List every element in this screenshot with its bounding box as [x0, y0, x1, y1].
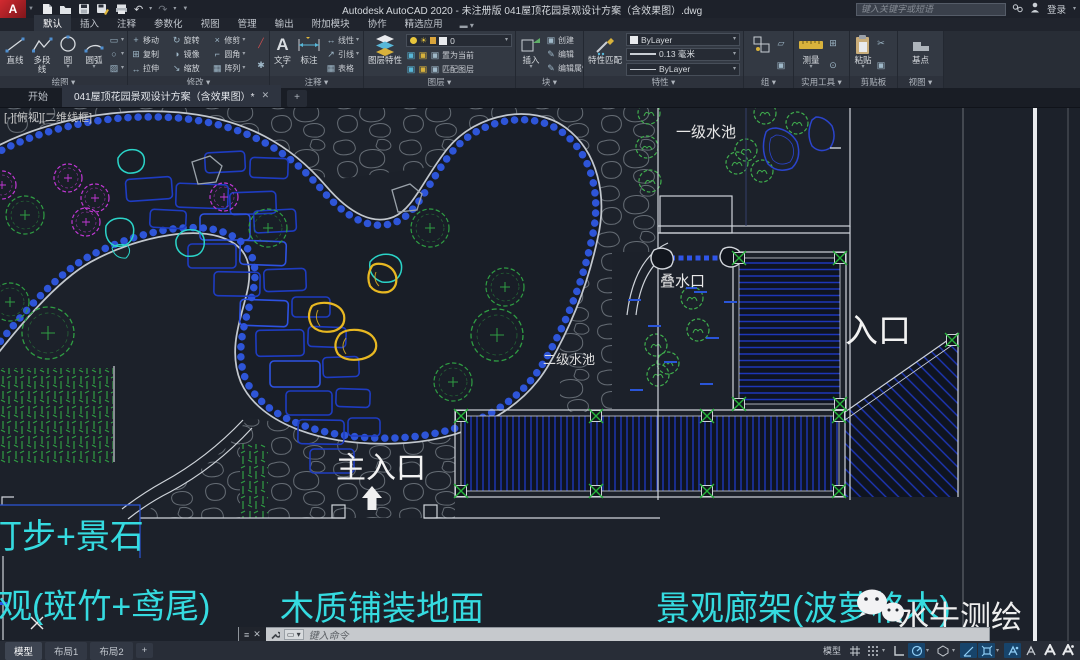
ortho-icon[interactable] — [890, 643, 907, 658]
ribbon-tab-insert[interactable]: 插入 — [71, 15, 108, 31]
ellipse-tool-icon[interactable]: ○▾ — [109, 49, 124, 59]
line-icon — [4, 34, 26, 56]
panel-label-view[interactable]: 视图 ▾ — [898, 76, 943, 88]
cut-icon[interactable]: ✂ — [876, 38, 886, 49]
copy-clip-icon[interactable]: ▣ — [876, 60, 886, 71]
titlebar-more-icon[interactable]: ▾ — [1073, 7, 1076, 12]
entrance-label: 入口 — [845, 312, 911, 349]
ribbon-tab-row: 默认 插入 注释 参数化 视图 管理 输出 附加模块 协作 精选应用 ▬ ▾ — [0, 18, 1080, 31]
linetype-preview — [630, 69, 656, 70]
group-tool[interactable] — [751, 33, 773, 76]
layout1-tab[interactable]: 布局1 — [45, 642, 87, 660]
ribbon-tab-featured[interactable]: 精选应用 — [396, 15, 452, 31]
fillet-icon: ⌐ — [212, 49, 222, 59]
arc-tool[interactable]: 圆弧 ▾ — [82, 33, 106, 76]
copy-tool[interactable]: ⊞复制 — [131, 49, 167, 60]
undo-icon[interactable]: ↶ — [134, 3, 143, 16]
status-toggles: 模型 ▾ ▾ ▾ ▾ — [823, 643, 1075, 658]
plot-icon[interactable] — [115, 4, 128, 15]
linetype-value: ByLayer — [659, 64, 730, 74]
erase-icon[interactable]: ╱ — [256, 38, 266, 49]
polar-tracking-icon[interactable] — [908, 643, 925, 658]
command-grip[interactable]: ≡ ✕ — [239, 627, 266, 641]
id-point-icon[interactable]: ⊙ — [828, 60, 838, 71]
viewport-controls-label[interactable]: [-][俯视][二维线框] — [4, 110, 92, 124]
group-extra-tools: ▱ ▣ — [776, 33, 786, 76]
redo-icon[interactable]: ↷ — [158, 3, 167, 16]
signin-button[interactable]: 登录 — [1047, 2, 1066, 16]
add-layout-tab[interactable]: + — [136, 643, 154, 658]
trim-tool[interactable]: ×修剪 ▾ — [212, 35, 253, 46]
open-file-icon[interactable] — [59, 4, 72, 15]
panel-label-annotate[interactable]: 注释 ▾ — [270, 76, 363, 88]
block-extra-tools: ▣创建 ✎编辑 ✎编辑属性 ▾ — [546, 33, 583, 76]
save-as-icon[interactable] — [96, 3, 109, 15]
status-bar: 模型 布局1 布局2 + 模型 ▾ ▾ ▾ ▾ — [0, 641, 1080, 660]
command-input[interactable]: 键入命令 — [309, 627, 349, 641]
lineweight-preview — [630, 53, 656, 55]
mirror-icon: ◑ — [172, 49, 182, 59]
edit-block-tool[interactable]: ✎编辑 — [546, 49, 583, 60]
array-icon: ▦ — [212, 63, 222, 74]
ungroup-icon[interactable]: ▱ — [776, 38, 786, 49]
customize-wrench-icon[interactable] — [270, 630, 280, 640]
mirror-tool[interactable]: ◑镜像 — [172, 49, 208, 60]
layer-color-swatch — [439, 37, 447, 45]
base-point-icon — [910, 34, 932, 56]
osnap-icon[interactable] — [978, 643, 995, 658]
ribbon-display-toggle-icon[interactable]: ▬ ▾ — [460, 21, 474, 31]
panel-label-block[interactable]: 块 ▾ — [516, 76, 583, 88]
layer-dropdown[interactable]: ☀ 0 ▾ — [406, 34, 512, 47]
create-block-tool[interactable]: ▣创建 — [546, 35, 583, 46]
clipboard-extra-tools: ✂ ▣ — [876, 33, 886, 76]
ribbon-tab-parametric[interactable]: 参数化 — [145, 15, 192, 31]
panel-utilities: 测量 ▾ ⊞ ⊙ 实用工具 ▾ — [794, 31, 850, 88]
panel-view: 基点 视图 ▾ — [898, 31, 944, 88]
arc-icon — [83, 34, 105, 56]
annotation-icon[interactable] — [1004, 643, 1021, 658]
annotate-extra-tools: ↔线性 ▾ ↗引线 ▾ ▦表格 — [326, 33, 359, 76]
layer-lock-icon — [430, 37, 436, 44]
main-entrance-label: 主入口 — [336, 452, 426, 485]
drawing-canvas[interactable]: [-][俯视][二维线框] 一级水池 叠水口 二级水池 主入口 入口 汀步+景石… — [0, 108, 1080, 641]
match-properties-tool[interactable]: 特性匹配 — [587, 33, 623, 76]
grip-icon[interactable]: ≡ — [244, 630, 249, 640]
rectangle-tool-icon[interactable]: ▭▾ — [109, 35, 124, 46]
ribbon-tab-manage[interactable]: 管理 — [229, 15, 266, 31]
cascade-label: 叠水口 — [660, 273, 705, 290]
titlebar-right-icons: 登录 ▾ — [1012, 2, 1076, 16]
array-tool[interactable]: ▦阵列 ▾ — [212, 63, 253, 74]
command-line[interactable]: ≡ ✕ ▭ ▾ 键入命令 — [238, 627, 990, 641]
ribbon-tab-addins[interactable]: 附加模块 — [303, 15, 359, 31]
model-space-label[interactable]: 模型 — [823, 644, 841, 657]
rotate-tool[interactable]: ↻旋转 — [172, 35, 208, 46]
match-properties-icon — [593, 34, 617, 56]
account-icon[interactable] — [1030, 2, 1040, 16]
properties-controls: ByLayer ▾ 0.13 毫米 ▾ ByLayer ▾ — [626, 33, 740, 76]
scale-tool[interactable]: ↘缩放 — [172, 63, 208, 74]
panel-draw: 直线 多段线 圆 ▾ 圆弧 ▾ ▭▾ ○▾ — [0, 31, 128, 88]
ribbon-tab-view[interactable]: 视图 — [192, 15, 229, 31]
paste-tool[interactable]: 粘贴 ▾ — [853, 33, 873, 76]
group-icon — [752, 34, 772, 56]
dimension-tool[interactable]: 标注 — [295, 33, 323, 76]
isodraft-caret-icon[interactable]: ▾ — [952, 647, 959, 654]
panel-properties: 特性匹配 ByLayer ▾ 0.13 毫米 ▾ ByL — [584, 31, 744, 88]
quick-access-toolbar: ↶▾ ↷▾ ▼ — [42, 3, 188, 16]
panel-modify: +移动 ↻旋转 ×修剪 ▾ ⊞复制 ◑镜像 ⌐圆角 ▾ ↔拉伸 ↘缩放 ▦阵列 … — [128, 31, 270, 88]
paste-icon — [854, 34, 872, 56]
fillet-tool[interactable]: ⌐圆角 ▾ — [212, 49, 253, 60]
bamboo-iris-label: 景观(斑竹+鸢尾) — [0, 588, 211, 626]
draw-extra-tools: ▭▾ ○▾ ▨▾ — [109, 33, 124, 76]
isodraft-icon[interactable] — [934, 643, 951, 658]
group-edit-icon[interactable]: ▣ — [776, 60, 786, 71]
text-icon: A — [276, 34, 288, 56]
layers-controls: ☀ 0 ▾ ▣▣▣置为当前 ▣▣▣匹配图层 — [406, 33, 512, 76]
ribbon-tab-annotate[interactable]: 注释 — [108, 15, 145, 31]
pool2-label: 二级水池 — [543, 352, 595, 367]
panel-clipboard: 粘贴 ▾ ✂ ▣ 剪贴板 — [850, 31, 898, 88]
match-layer-tool[interactable]: ▣▣▣匹配图层 — [406, 64, 512, 75]
panel-label-properties[interactable]: 特性 ▾ — [584, 76, 743, 88]
pool1-label: 一级水池 — [676, 124, 736, 141]
logo-caret-icon[interactable]: ▼ — [28, 6, 34, 12]
exchange-icon[interactable] — [1012, 3, 1023, 16]
move-icon: + — [131, 35, 141, 45]
panel-group: ▱ ▣ 组 ▾ — [744, 31, 794, 88]
table-tool[interactable]: ▦表格 — [326, 63, 359, 74]
dimension-icon — [296, 34, 322, 56]
grid-icon[interactable] — [846, 643, 863, 658]
annotation-scale-icon[interactable] — [1022, 643, 1039, 658]
layer-on-icon — [410, 37, 417, 44]
help-search-box[interactable] — [856, 3, 1006, 16]
ribbon: 直线 多段线 圆 ▾ 圆弧 ▾ ▭▾ ○▾ — [0, 31, 1080, 88]
layout2-tab[interactable]: 布局2 — [90, 642, 132, 660]
base-point-tool[interactable]: 基点 — [909, 33, 933, 76]
stepping-stone-label: 汀步+景石 — [0, 518, 144, 556]
move-tool[interactable]: +移动 — [131, 35, 167, 46]
polar-caret-icon[interactable]: ▾ — [926, 647, 933, 654]
lineweight-dropdown[interactable]: 0.13 毫米 ▾ — [626, 48, 740, 61]
linear-dim-tool[interactable]: ↔线性 ▾ — [326, 35, 359, 46]
model-tab[interactable]: 模型 — [5, 642, 42, 660]
undo-caret-icon[interactable]: ▾ — [149, 7, 152, 12]
polyline-icon — [31, 34, 53, 56]
panel-label-group[interactable]: 组 ▾ — [744, 76, 793, 88]
osnap-caret-icon[interactable]: ▾ — [996, 647, 1003, 654]
stretch-icon: ↔ — [131, 64, 141, 74]
panel-block: 插入 ▾ ▣创建 ✎编辑 ✎编辑属性 ▾ 块 ▾ — [516, 31, 584, 88]
circle-icon — [58, 34, 78, 56]
panel-label-clipboard[interactable]: 剪贴板 — [850, 76, 897, 88]
annotation-visibility-icon[interactable] — [1040, 643, 1057, 658]
make-current-tool[interactable]: ▣▣▣置为当前 — [406, 50, 512, 61]
hatch-tool-icon[interactable]: ▨▾ — [109, 63, 124, 74]
layer-sun-icon: ☀ — [420, 36, 427, 45]
new-file-icon[interactable] — [42, 3, 53, 15]
new-drawing-tab-icon[interactable]: + — [287, 90, 307, 107]
color-dropdown[interactable]: ByLayer ▾ — [626, 33, 740, 46]
ribbon-tab-output[interactable]: 输出 — [266, 15, 303, 31]
panel-label-utilities[interactable]: 实用工具 ▾ — [794, 76, 849, 88]
drawing-tab[interactable]: 041屋顶花园景观设计方案（含效果图）* ✕ — [62, 85, 281, 107]
panel-label-layers[interactable]: 图层 ▾ — [364, 76, 515, 88]
close-tab-icon[interactable]: ✕ — [262, 90, 270, 101]
measure-tool[interactable]: 测量 ▾ — [797, 33, 825, 76]
modify-grid: +移动 ↻旋转 ×修剪 ▾ ⊞复制 ◑镜像 ⌐圆角 ▾ ↔拉伸 ↘缩放 ▦阵列 … — [131, 33, 253, 76]
autoscale-icon[interactable] — [1058, 643, 1075, 658]
ribbon-tab-collaborate[interactable]: 协作 — [359, 15, 396, 31]
drawing-tab-label: 041屋顶花园景观设计方案（含效果图）* — [74, 88, 255, 103]
redo-caret-icon[interactable]: ▾ — [173, 7, 176, 12]
utilities-extra-tools: ⊞ ⊙ — [828, 33, 838, 76]
panel-layers: 图层特性 ☀ 0 ▾ ▣▣▣置为当前 ▣▣▣匹配图层 图层 ▾ — [364, 31, 516, 88]
snap-caret-icon[interactable]: ▾ — [882, 647, 889, 654]
measure-icon — [798, 34, 824, 56]
stretch-tool[interactable]: ↔拉伸 — [131, 63, 167, 74]
snap-icon[interactable] — [864, 643, 881, 658]
ribbon-tab-home[interactable]: 默认 — [34, 15, 71, 31]
layer-properties-icon — [372, 34, 398, 56]
line-tool[interactable]: 直线 — [3, 33, 27, 76]
trim-icon: × — [212, 35, 222, 45]
edit-attributes-tool[interactable]: ✎编辑属性 ▾ — [546, 63, 583, 74]
rotate-icon: ↻ — [172, 35, 182, 46]
layer-properties-tool[interactable]: 图层特性 — [367, 33, 403, 76]
insert-block-tool[interactable]: 插入 ▾ — [519, 33, 543, 76]
close-command-icon[interactable]: ✕ — [253, 629, 261, 640]
layer-current-value: 0 — [450, 36, 502, 46]
text-tool[interactable]: A 文字 ▾ — [273, 33, 292, 76]
autocad-logo-icon[interactable]: A — [0, 0, 26, 18]
color-value: ByLayer — [641, 35, 730, 45]
modify-extra-tools: ╱ ✱ — [256, 33, 266, 76]
autocad-window: A ▼ ↶▾ ↷▾ ▼ Autodesk AutoCAD 2020 - 未注册版… — [0, 0, 1080, 660]
start-tab[interactable]: 开始 — [16, 85, 60, 107]
copy-icon: ⊞ — [131, 49, 141, 60]
panel-annotate: A 文字 ▾ 标注 ↔线性 ▾ ↗引线 ▾ ▦表格 注释 ▾ — [270, 31, 364, 88]
linetype-dropdown[interactable]: ByLayer ▾ — [626, 63, 740, 76]
explode-icon[interactable]: ✱ — [256, 60, 266, 71]
help-search-input[interactable] — [861, 4, 1001, 14]
insert-block-icon — [520, 34, 542, 56]
save-icon[interactable] — [78, 3, 90, 15]
circle-tool[interactable]: 圆 ▾ — [57, 33, 79, 76]
recent-commands-icon[interactable]: ▭ ▾ — [284, 629, 304, 640]
wood-floor-label: 木质铺装地面 — [280, 590, 484, 628]
lineweight-value: 0.13 毫米 — [659, 48, 730, 60]
color-swatch — [630, 36, 638, 44]
polyline-tool[interactable]: 多段线 — [30, 33, 54, 76]
document-tabs: 开始 041屋顶花园景观设计方案（含效果图）* ✕ + — [0, 88, 1080, 108]
scale-icon: ↘ — [172, 63, 182, 74]
otrack-icon[interactable] — [960, 643, 977, 658]
leader-tool[interactable]: ↗引线 ▾ — [326, 49, 359, 60]
quick-calc-icon[interactable]: ⊞ — [828, 38, 838, 49]
